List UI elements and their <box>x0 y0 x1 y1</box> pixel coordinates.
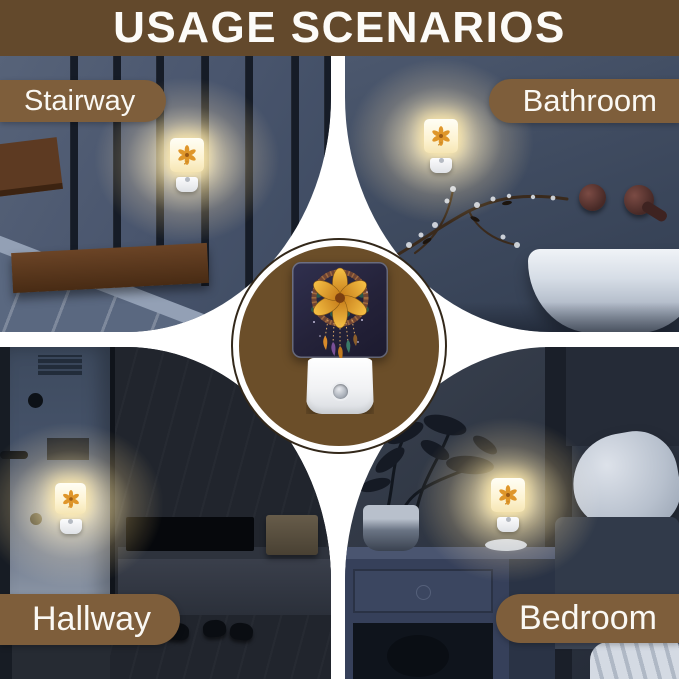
bench-cushion <box>266 515 318 555</box>
night-light-plug-base <box>176 177 198 192</box>
night-light <box>170 138 204 192</box>
scene-label-text: Hallway <box>32 600 151 639</box>
night-light-usage-infographic: USAGE SCENARIOS <box>0 0 679 679</box>
flower-icon <box>61 489 81 509</box>
night-light-plug-base <box>430 158 452 173</box>
flower-icon <box>176 144 198 166</box>
night-light-plug-base <box>60 519 82 534</box>
scene-label-text: Stairway <box>24 85 135 118</box>
sensor-dot <box>185 177 190 182</box>
door-vent <box>38 355 82 375</box>
flower-icon <box>497 484 519 506</box>
product-artwork-panel <box>292 262 388 358</box>
plant-pot <box>363 505 419 551</box>
light-sensor <box>331 382 350 401</box>
headboard <box>566 347 679 446</box>
scene-label-text: Bedroom <box>519 599 657 638</box>
sensor-dot <box>439 158 444 163</box>
night-light-plug-base <box>497 517 519 532</box>
dreamcatcher-lily-artwork <box>292 262 388 358</box>
handrail-wood-upper <box>0 137 63 197</box>
header-band: USAGE SCENARIOS <box>0 0 679 56</box>
drawer-knob <box>416 585 431 600</box>
night-light <box>424 119 458 173</box>
product-base <box>306 358 374 414</box>
shoe <box>202 619 226 638</box>
night-light-panel <box>491 478 525 512</box>
sensor-dot <box>506 517 511 522</box>
scene-label-bedroom: Bedroom <box>496 594 679 643</box>
scene-label-stairway: Stairway <box>0 80 166 122</box>
night-light-panel <box>170 138 204 172</box>
basket <box>387 635 449 677</box>
sensor-dot <box>68 519 73 524</box>
door-deadbolt <box>28 393 43 408</box>
scene-label-hallway: Hallway <box>0 594 180 645</box>
night-light <box>55 483 86 534</box>
scene-label-bathroom: Bathroom <box>489 79 679 123</box>
duvet <box>590 642 679 679</box>
flower-icon <box>430 125 452 147</box>
page-title: USAGE SCENARIOS <box>113 3 566 53</box>
night-light <box>491 478 525 532</box>
scene-label-text: Bathroom <box>523 83 657 119</box>
night-light-panel <box>424 119 458 153</box>
faucet-knob <box>579 184 606 211</box>
night-light-panel <box>55 483 86 514</box>
